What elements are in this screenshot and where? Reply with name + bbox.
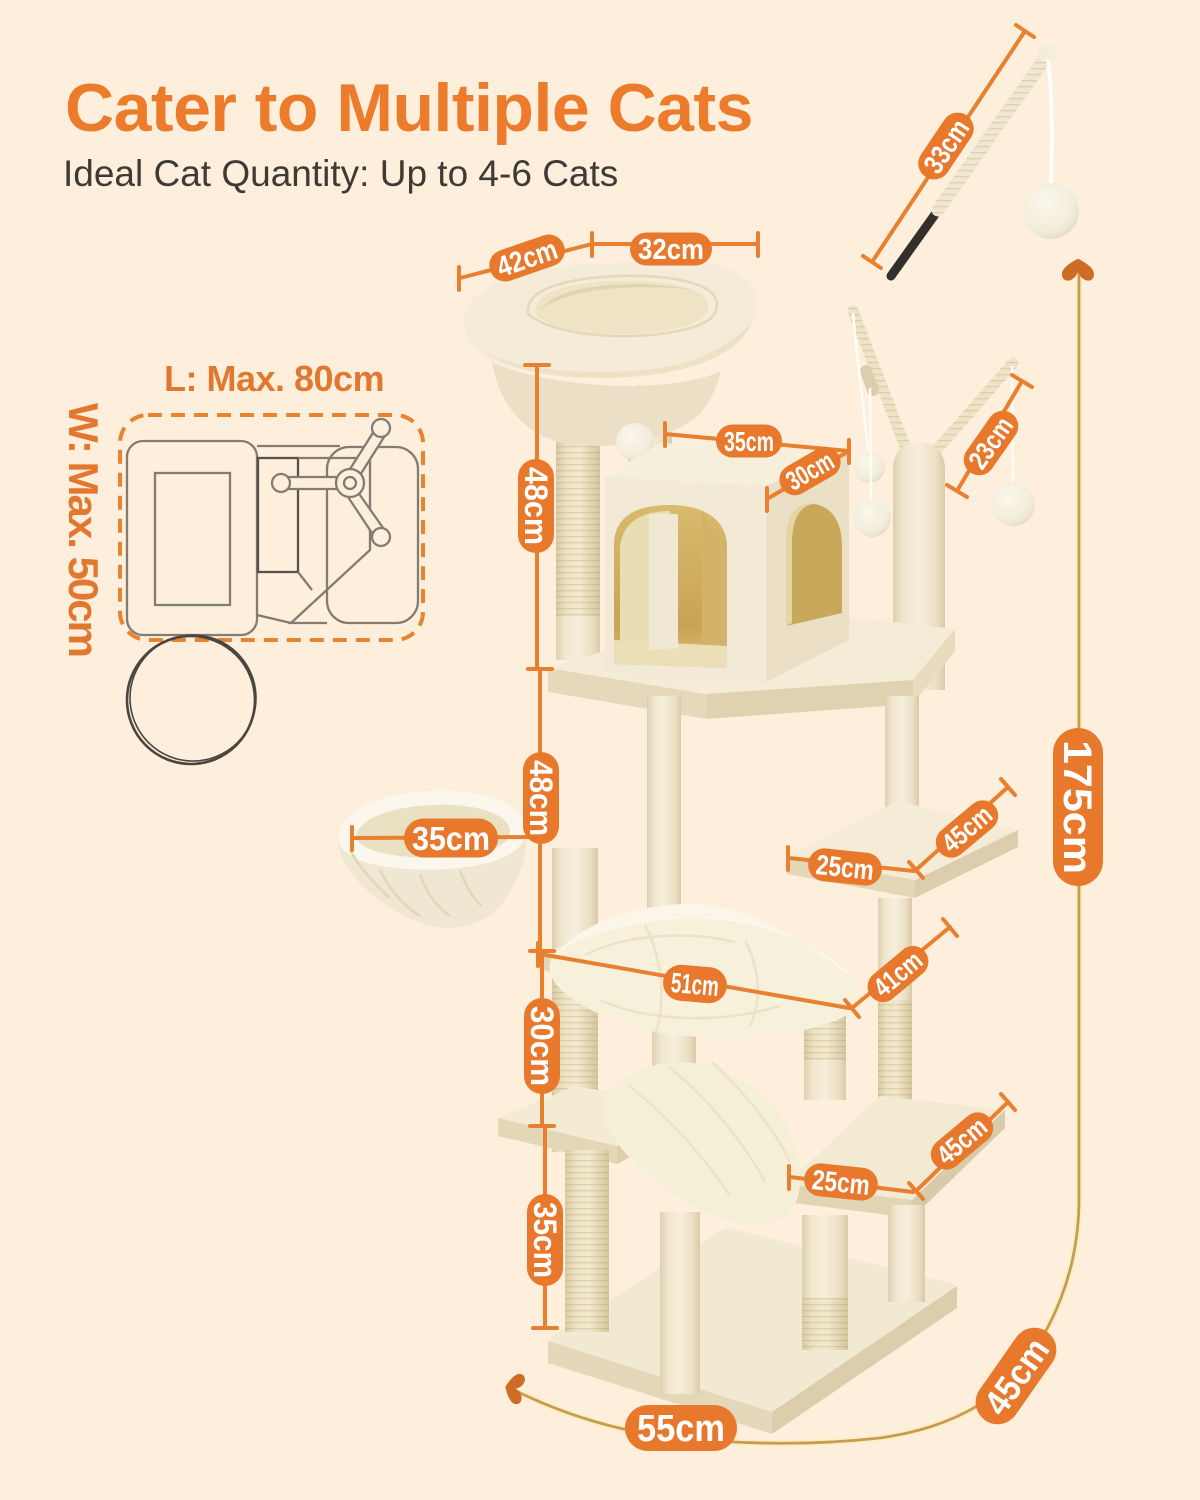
svg-text:48cm: 48cm xyxy=(523,760,559,836)
svg-text:35cm: 35cm xyxy=(527,1202,563,1278)
svg-text:25cm: 25cm xyxy=(814,849,875,886)
svg-text:35cm: 35cm xyxy=(724,426,774,457)
svg-text:175cm: 175cm xyxy=(1055,740,1099,874)
svg-text:32cm: 32cm xyxy=(638,234,704,266)
svg-text:55cm: 55cm xyxy=(637,1408,725,1450)
svg-text:30cm: 30cm xyxy=(524,1006,560,1086)
svg-text:51cm: 51cm xyxy=(670,967,721,1002)
svg-text:25cm: 25cm xyxy=(810,1164,871,1201)
svg-text:48cm: 48cm xyxy=(518,467,554,545)
svg-text:35cm: 35cm xyxy=(412,820,490,857)
